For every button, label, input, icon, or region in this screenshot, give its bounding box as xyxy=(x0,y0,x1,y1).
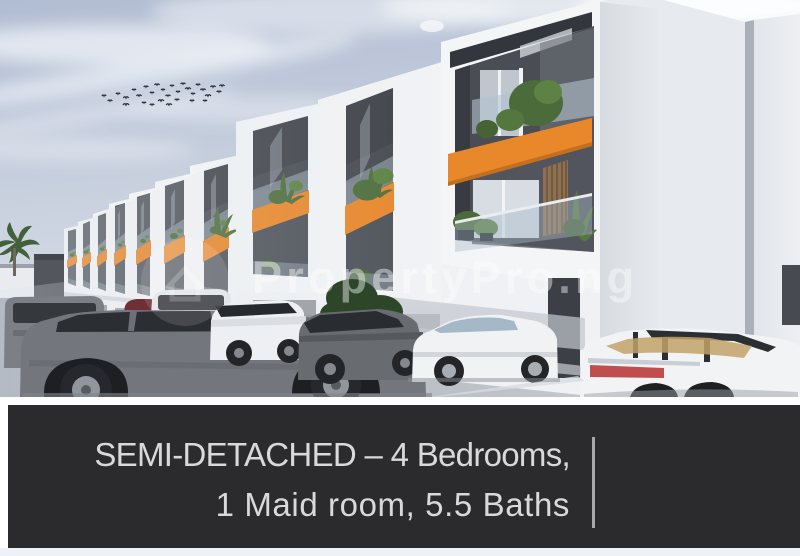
svg-text:PropertyPro.ng: PropertyPro.ng xyxy=(252,252,638,303)
